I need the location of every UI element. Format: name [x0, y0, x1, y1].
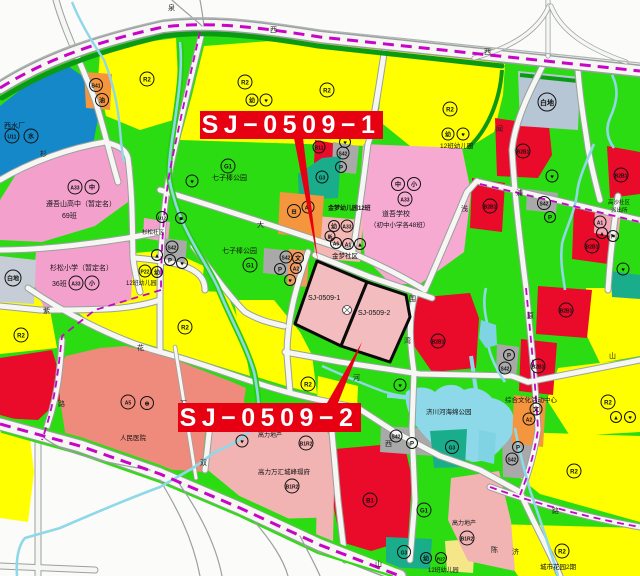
svg-text:G1: G1: [224, 165, 233, 171]
svg-text:S42: S42: [540, 202, 549, 208]
svg-text:R2: R2: [604, 401, 612, 407]
svg-text:R2: R2: [17, 334, 25, 340]
svg-text:新: 新: [328, 234, 333, 241]
svg-text:路: 路: [552, 506, 559, 515]
svg-text:金梦幼儿园12班: 金梦幼儿园12班: [327, 204, 371, 212]
svg-text:综合文化活动中心: 综合文化活动中心: [505, 395, 558, 404]
svg-text:R2: R2: [446, 108, 454, 114]
svg-text:■: ■: [179, 217, 183, 223]
svg-text:文: 文: [294, 255, 302, 263]
svg-text:派出所: 派出所: [611, 206, 628, 214]
svg-text:杉: 杉: [40, 149, 47, 158]
svg-text:♥: ♥: [398, 384, 402, 390]
svg-text:湾: 湾: [404, 336, 411, 345]
svg-text:S42: S42: [501, 367, 510, 373]
svg-text:A33: A33: [400, 198, 409, 204]
svg-text:R2: R2: [558, 550, 566, 556]
svg-text:♥: ♥: [550, 175, 554, 181]
svg-text:泉: 泉: [168, 3, 175, 12]
svg-text:A1: A1: [345, 243, 352, 249]
svg-text:⊕: ⊕: [144, 402, 149, 408]
svg-text:B11: B11: [315, 146, 324, 152]
svg-text:遵吾山高中（暂定名）: 遵吾山高中（暂定名）: [46, 199, 116, 208]
svg-text:西水厂: 西水厂: [4, 121, 25, 130]
svg-text:B2B1: B2B1: [484, 205, 497, 211]
svg-text:陈: 陈: [491, 545, 498, 554]
svg-text:B1R2: B1R2: [300, 442, 313, 448]
svg-text:G1: G1: [420, 509, 429, 515]
svg-text:♥: ♥: [621, 268, 625, 274]
svg-text:U11: U11: [8, 135, 17, 141]
svg-text:⊟: ⊟: [291, 210, 296, 216]
svg-text:花: 花: [137, 343, 144, 352]
svg-text:河: 河: [353, 374, 360, 382]
svg-text:A5: A5: [125, 401, 132, 407]
svg-text:R2: R2: [570, 470, 578, 476]
svg-text:西: 西: [385, 440, 392, 448]
svg-text:A6: A6: [333, 242, 340, 248]
svg-text:杉松社区: 杉松社区: [142, 228, 165, 236]
svg-text:B2B1: B2B1: [517, 150, 530, 156]
svg-text:A33: A33: [70, 186, 79, 192]
svg-text:道吾学校: 道吾学校: [382, 209, 410, 218]
svg-text:浅: 浅: [461, 204, 468, 213]
svg-text:B1R2: B1R2: [286, 485, 299, 491]
svg-text:油: 油: [99, 97, 105, 105]
svg-text:♥: ♥: [628, 416, 632, 422]
svg-text:水: 水: [28, 133, 35, 141]
svg-text:♥: ♥: [240, 440, 244, 446]
svg-text:▲: ▲: [357, 243, 363, 249]
svg-text:A33: A33: [71, 282, 80, 288]
svg-text:城市花园2期: 城市花园2期: [540, 562, 577, 571]
svg-text:白地: 白地: [7, 275, 19, 283]
svg-text:P: P: [168, 259, 172, 265]
svg-text:12班幼儿园: 12班幼儿园: [428, 566, 459, 574]
svg-text:中: 中: [89, 184, 95, 192]
svg-text:中: 中: [395, 181, 401, 189]
svg-text:S42: S42: [339, 152, 348, 158]
svg-text:P: P: [339, 166, 343, 172]
svg-text:12班幼儿园: 12班幼儿园: [440, 141, 473, 150]
svg-text:SJ−0509−2: SJ−0509−2: [180, 404, 359, 432]
svg-text:文: 文: [532, 406, 540, 414]
svg-text:12班幼儿园: 12班幼儿园: [126, 279, 157, 287]
svg-text:G3: G3: [319, 176, 326, 182]
svg-text:幼: 幼: [154, 269, 160, 277]
svg-text:A2: A2: [293, 267, 300, 273]
svg-text:♥: ♥: [343, 141, 347, 147]
svg-text:西: 西: [270, 26, 277, 34]
svg-text:西: 西: [484, 48, 491, 56]
svg-text:高力万汇城峰璟府: 高力万汇城峰璟府: [258, 467, 311, 476]
svg-text:SJ−0509−1: SJ−0509−1: [202, 111, 381, 139]
svg-text:B2B1: B2B1: [615, 174, 628, 180]
svg-text:R27: R27: [437, 557, 446, 562]
svg-text:R2: R2: [241, 81, 249, 87]
svg-text:小: 小: [88, 280, 95, 288]
svg-text:SJ-0509-2: SJ-0509-2: [358, 310, 390, 317]
svg-text:A1: A1: [597, 221, 604, 227]
svg-text:A2: A2: [526, 418, 533, 424]
svg-text:紫: 紫: [43, 307, 50, 315]
svg-text:P: P: [548, 216, 552, 222]
svg-text:浦: 浦: [516, 188, 523, 197]
svg-text:幼: 幼: [445, 131, 451, 139]
svg-text:S42: S42: [282, 256, 291, 262]
svg-text:▲: ▲: [599, 232, 605, 238]
svg-text:小: 小: [410, 181, 417, 189]
svg-text:R2: R2: [143, 78, 151, 84]
svg-text:R2: R2: [304, 383, 312, 389]
svg-text:山: 山: [609, 351, 616, 360]
svg-text:高力地产: 高力地产: [452, 519, 476, 527]
svg-text:SJ-0509-1: SJ-0509-1: [308, 295, 340, 302]
svg-text:B2B1: B2B1: [560, 309, 573, 315]
svg-text:36班: 36班: [52, 279, 67, 288]
svg-text:幼: 幼: [423, 555, 429, 563]
svg-text:双: 双: [200, 459, 207, 467]
svg-text:济川河海绵公园: 济川河海绵公园: [426, 407, 472, 416]
svg-text:高力地产: 高力地产: [258, 431, 282, 439]
svg-text:山: 山: [375, 559, 382, 568]
svg-text:♥: ♥: [180, 262, 184, 268]
svg-text:B2B1: B2B1: [532, 365, 545, 371]
svg-text:原: 原: [527, 312, 534, 320]
svg-text:⚑: ⚑: [610, 234, 615, 241]
svg-text:幼: 幼: [249, 97, 255, 105]
svg-text:B2B1: B2B1: [432, 340, 445, 346]
svg-text:G1: G1: [246, 264, 255, 270]
svg-text:U12: U12: [158, 216, 167, 221]
svg-text:♥: ♥: [288, 279, 292, 285]
svg-text:A33: A33: [342, 225, 351, 231]
svg-text:杉松小学（暂定名）: 杉松小学（暂定名）: [50, 263, 113, 272]
svg-text:♥: ♥: [190, 180, 194, 186]
svg-text:P22: P22: [141, 270, 150, 276]
svg-text:七子棒公园: 七子棒公园: [222, 246, 257, 255]
svg-text:R2: R2: [323, 89, 331, 95]
svg-text:B41: B41: [91, 84, 100, 90]
svg-text:G3: G3: [449, 446, 456, 452]
svg-text:大: 大: [257, 220, 264, 229]
svg-text:P: P: [507, 354, 511, 360]
svg-text:人民医院: 人民医院: [120, 433, 147, 442]
svg-text:▲: ▲: [154, 254, 160, 260]
svg-text:P: P: [516, 446, 520, 452]
svg-text:♥: ♥: [264, 99, 268, 105]
svg-text:路: 路: [58, 399, 65, 408]
svg-text:B1R2: B1R2: [461, 537, 474, 543]
svg-text:G3: G3: [401, 551, 408, 557]
svg-text:白地: 白地: [540, 98, 554, 107]
svg-text:S42: S42: [508, 458, 517, 464]
svg-text:七子棒公园: 七子棒公园: [212, 173, 247, 182]
svg-text:P: P: [278, 268, 282, 274]
svg-text:（初中小学各48班）: （初中小学各48班）: [370, 220, 429, 229]
svg-text:▲: ▲: [613, 416, 619, 422]
svg-text:S42: S42: [168, 246, 177, 252]
svg-text:高沙社区: 高沙社区: [608, 198, 631, 206]
svg-text:♥: ♥: [461, 133, 465, 139]
svg-text:闻: 闻: [496, 124, 503, 133]
svg-text:B1: B1: [366, 499, 374, 505]
svg-text:P: P: [410, 442, 414, 448]
svg-text:金梦社区: 金梦社区: [332, 251, 359, 260]
svg-text:S42: S42: [392, 435, 401, 441]
svg-text:R2: R2: [181, 326, 189, 332]
svg-text:幼: 幼: [331, 223, 337, 231]
svg-text:济: 济: [512, 547, 519, 556]
svg-text:围: 围: [409, 295, 416, 303]
svg-text:B2B1: B2B1: [586, 245, 599, 251]
svg-text:69班: 69班: [62, 211, 77, 220]
